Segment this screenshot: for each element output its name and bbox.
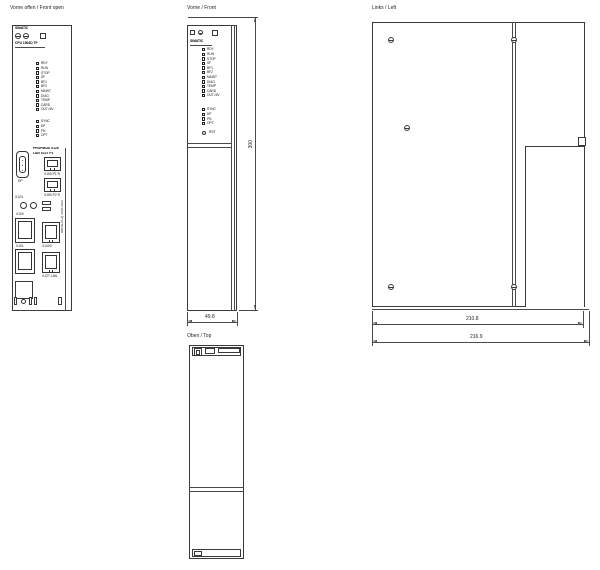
front-brand-label: SIMATIC [190, 40, 203, 44]
led-indicator-icon [36, 67, 39, 70]
view-title-left: Links / Left [372, 5, 396, 11]
led-indicator-icon [202, 94, 205, 97]
view-title-front-open: Vorne offen / Front open [10, 5, 64, 11]
dsub-sub-label: DP [18, 180, 23, 184]
front-screw-icon [198, 30, 203, 35]
led-indicator-icon [202, 117, 205, 120]
module-top-outline [189, 345, 244, 559]
led-label: PN [207, 117, 211, 121]
dimension-drawing: Vorne offen / Front open SIMATIC CPU 150… [0, 0, 600, 570]
led-label: MAINT [41, 89, 51, 93]
led-indicator-icon [36, 125, 39, 128]
dim-depth-body-value: 210.8 [466, 316, 479, 322]
led-label: BF2 [207, 70, 213, 74]
dim-ext-bottom [239, 310, 258, 311]
led-label: SYNC [207, 107, 216, 111]
front-switch-icon [212, 30, 218, 36]
led-label: DP [41, 124, 45, 128]
rj45-port-4 [42, 252, 60, 273]
rj45-port-2 [44, 178, 61, 192]
led-label: SF [41, 75, 45, 79]
led-indicator-icon [36, 90, 39, 93]
led-indicator-icon [202, 53, 205, 56]
profibus-dsub-connector [16, 151, 29, 178]
led-indicator-icon [202, 57, 205, 60]
dim-ext-top [188, 17, 258, 18]
led-indicator-icon [36, 129, 39, 132]
terminal-icon [20, 202, 27, 209]
led-indicator-icon [202, 48, 205, 51]
led-label: BF1 [207, 66, 213, 70]
terminal-block-icon [42, 207, 51, 211]
led-indicator-icon [202, 62, 205, 65]
top-connector-block [218, 348, 240, 353]
top-connector-block [205, 348, 215, 354]
rj45-port-1-label: X150 P1 R [44, 173, 60, 177]
led-label: STOP [41, 71, 50, 75]
dim-line-height [255, 17, 256, 310]
side-rotated-text: DRIVE-CLiQ X100-X102 [60, 200, 64, 233]
led-label: TEMP [41, 98, 50, 102]
dim-depth-total-value: 216.9 [470, 334, 483, 340]
screw-icon [388, 37, 394, 43]
front-reset-icon [202, 131, 206, 135]
led-label: RDY [41, 61, 48, 65]
dcliq-port-2 [15, 249, 35, 274]
bottom-element [34, 297, 37, 305]
led-indicator-icon [36, 62, 39, 65]
rj45-port-3 [42, 222, 60, 243]
led-label: OUT>5V [41, 107, 54, 111]
dcliq-port-1-label: X100 [16, 213, 24, 217]
front-switch-icon [190, 30, 195, 35]
top-bottom-block [194, 551, 202, 556]
led-indicator-icon [202, 85, 205, 88]
dim-width-value: 49.8 [205, 314, 215, 320]
led-indicator-icon [36, 85, 39, 88]
led-label: OPT [207, 121, 214, 125]
bottom-element [29, 297, 32, 305]
led-label: RUN [207, 52, 214, 56]
led-label: OPT [41, 133, 48, 137]
rj45-port-2-label: X150 P2 R [44, 194, 60, 198]
led-indicator-icon [36, 120, 39, 123]
led-indicator-icon [202, 89, 205, 92]
led-indicator-icon [36, 108, 39, 111]
dim-line-depth-total [372, 342, 589, 343]
led-label: BF2 [41, 84, 47, 88]
led-label: RDY [207, 47, 214, 51]
led-indicator-icon [36, 99, 39, 102]
module-brand-label: SIMATIC [15, 27, 28, 31]
led-indicator-icon [36, 76, 39, 79]
bottom-element [14, 297, 17, 305]
led-label: DP [207, 112, 211, 116]
top-connector-inner [196, 350, 200, 355]
module-model-label: CPU 1504D TF [15, 42, 38, 46]
terminal-block-icon [42, 201, 51, 205]
led-indicator-icon [36, 103, 39, 106]
rj45-port-3-label: X1400 [42, 245, 52, 249]
cover-latch [578, 137, 586, 146]
led-indicator-icon [202, 122, 205, 125]
dsub-label-2: LAN X127 P1 [33, 152, 65, 156]
terminal-icon [30, 202, 37, 209]
led-label: CARD [41, 103, 50, 107]
rotary-switch-icon [15, 33, 21, 39]
led-label: DIAG [41, 94, 49, 98]
dsub-label-1: PROFIBUS X126 [33, 147, 65, 151]
view-title-top: Oben / Top [187, 333, 211, 339]
reset-button-icon [21, 299, 26, 304]
rj45-port-1 [44, 157, 61, 171]
dcliq-port-2-label: X101 [16, 245, 24, 249]
led-indicator-icon [202, 108, 205, 111]
dim-line-depth-body [372, 324, 583, 325]
led-label: DIAG [207, 80, 215, 84]
led-label: SYNC [41, 119, 50, 123]
led-indicator-icon [202, 71, 205, 74]
bottom-element [58, 297, 62, 305]
led-label: PN [41, 129, 45, 133]
mode-switch-icon [40, 33, 46, 39]
led-indicator-icon [202, 113, 205, 116]
front-reset-label: RST [209, 131, 216, 135]
led-label: SF [207, 61, 211, 65]
power-terminal-label: X124 [15, 196, 23, 200]
screw-icon [404, 125, 410, 131]
dim-height-value: 300 [248, 140, 254, 148]
dcliq-port-1 [15, 218, 35, 243]
led-label: TEMP [207, 84, 216, 88]
led-indicator-icon [36, 94, 39, 97]
dim-line-width [187, 322, 237, 323]
led-label: MAINT [207, 75, 217, 79]
led-label: STOP [207, 57, 216, 61]
led-label: RUN [41, 66, 48, 70]
led-indicator-icon [202, 80, 205, 83]
rj45-port-4-label: X127 LAN [42, 275, 57, 279]
front-cover-outline [525, 146, 585, 307]
led-indicator-icon [202, 66, 205, 69]
screw-icon [511, 37, 517, 43]
led-label: BF1 [41, 80, 47, 84]
led-indicator-icon [36, 134, 39, 137]
led-indicator-icon [36, 71, 39, 74]
rotary-switch-icon [23, 33, 29, 39]
led-label: OUT>5V [207, 93, 220, 97]
led-indicator-icon [36, 80, 39, 83]
led-label: CARD [207, 89, 216, 93]
view-title-front: Vorne / Front [187, 5, 216, 11]
led-indicator-icon [202, 76, 205, 79]
screw-icon [511, 284, 517, 290]
screw-icon [388, 284, 394, 290]
